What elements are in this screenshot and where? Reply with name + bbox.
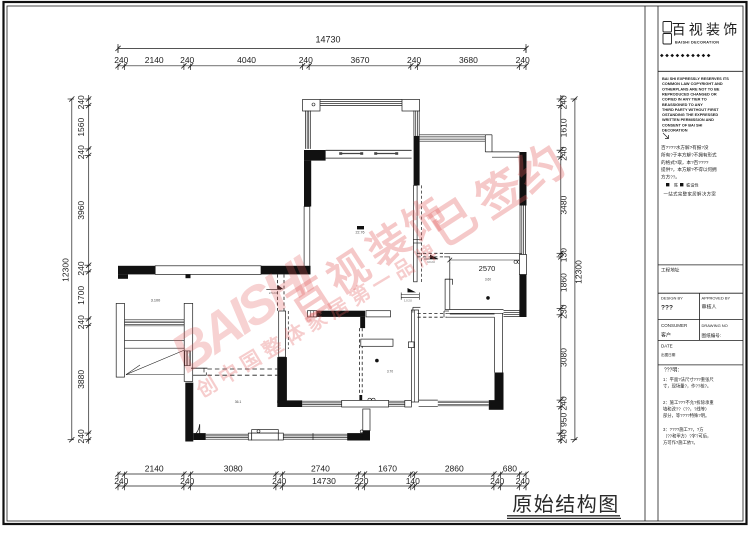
svg-text:BEASSIGNED TO ANY: BEASSIGNED TO ANY bbox=[662, 103, 703, 107]
svg-text:240: 240 bbox=[490, 476, 504, 486]
svg-text:1560: 1560 bbox=[76, 117, 86, 136]
svg-text:DATE: DATE bbox=[661, 344, 673, 349]
svg-text:原始结构图: 原始结构图 bbox=[512, 493, 620, 516]
svg-text:3：????施工??，?方: 3：????施工??，?方 bbox=[663, 426, 704, 433]
svg-text:3080: 3080 bbox=[559, 348, 569, 367]
svg-text:14730: 14730 bbox=[315, 35, 340, 45]
svg-text:240: 240 bbox=[76, 261, 86, 275]
svg-text:3960: 3960 bbox=[76, 201, 86, 220]
svg-text:240: 240 bbox=[407, 55, 421, 65]
svg-text:240: 240 bbox=[272, 476, 286, 486]
svg-text:WRITTEN PERMISSION AND: WRITTEN PERMISSION AND bbox=[662, 118, 714, 122]
svg-text:2140: 2140 bbox=[145, 55, 164, 65]
svg-text:BAISHI DECORATION: BAISHI DECORATION bbox=[675, 41, 719, 45]
svg-text:240: 240 bbox=[76, 145, 86, 159]
svg-text:220: 220 bbox=[354, 476, 368, 486]
svg-text:的格式?取，本?百????: 的格式?取，本?百???? bbox=[661, 159, 709, 166]
svg-text:3670: 3670 bbox=[351, 55, 370, 65]
svg-text:12300: 12300 bbox=[574, 260, 584, 284]
svg-text:REPRODUCED CHANGED OR: REPRODUCED CHANGED OR bbox=[662, 92, 717, 96]
svg-text:DRAWING NO: DRAWING NO bbox=[702, 323, 728, 328]
svg-text:240: 240 bbox=[180, 55, 194, 65]
svg-text:4040: 4040 bbox=[237, 55, 256, 65]
svg-text:OTHERPLANS ARE NOT TO BE: OTHERPLANS ARE NOT TO BE bbox=[662, 87, 720, 91]
svg-text:240: 240 bbox=[76, 429, 86, 443]
svg-text:3.60: 3.60 bbox=[485, 278, 491, 282]
svg-text:240: 240 bbox=[559, 429, 569, 443]
svg-text:部分，等????特殊?明。: 部分，等????特殊?明。 bbox=[663, 412, 709, 419]
svg-text:240: 240 bbox=[516, 476, 530, 486]
svg-text:出图日期: 出图日期 bbox=[661, 352, 676, 357]
svg-text:2140: 2140 bbox=[145, 464, 164, 474]
svg-text:240: 240 bbox=[516, 55, 530, 65]
svg-text:240: 240 bbox=[180, 476, 194, 486]
svg-text:1860: 1860 bbox=[559, 273, 569, 292]
svg-text:THIRD PARTY WITHOUT FIRST: THIRD PARTY WITHOUT FIRST bbox=[662, 108, 719, 112]
svg-text:240: 240 bbox=[114, 55, 128, 65]
svg-text:3080: 3080 bbox=[224, 464, 243, 474]
svg-text:12300: 12300 bbox=[61, 258, 71, 282]
svg-text:240: 240 bbox=[559, 95, 569, 109]
svg-text:240: 240 bbox=[76, 95, 86, 109]
svg-text:???: ??? bbox=[661, 305, 673, 312]
svg-text:COMMON LAW COPYRIGHT AND: COMMON LAW COPYRIGHT AND bbox=[662, 82, 723, 86]
svg-text:2：施工???不允?拆除承重: 2：施工???不允?拆除承重 bbox=[663, 399, 714, 406]
svg-text:BAI SHI EXPRESSLY RESERVES ITS: BAI SHI EXPRESSLY RESERVES ITS bbox=[662, 77, 729, 81]
svg-text:140: 140 bbox=[406, 476, 420, 486]
svg-text:审核人: 审核人 bbox=[702, 304, 717, 311]
svg-text:3680: 3680 bbox=[459, 55, 478, 65]
svg-text:方方??。: 方方??。 bbox=[661, 174, 680, 181]
svg-text:墙和改??（??，?线等）: 墙和改??（??，?线等） bbox=[663, 406, 709, 413]
svg-text:提供?，本方解?不得以何拥: 提供?，本方解?不得以何拥 bbox=[661, 166, 717, 173]
svg-text:1670: 1670 bbox=[378, 464, 397, 474]
svg-text:方可作?施工依?。: 方可作?施工依?。 bbox=[663, 439, 698, 446]
svg-text:APPROVED BY: APPROVED BY bbox=[702, 296, 731, 301]
svg-text:3.70: 3.70 bbox=[387, 370, 393, 374]
svg-text:680: 680 bbox=[503, 464, 517, 474]
svg-text:1.0 2.0: 1.0 2.0 bbox=[404, 300, 412, 303]
svg-text:2860: 2860 bbox=[445, 464, 464, 474]
svg-text:950: 950 bbox=[559, 413, 569, 427]
svg-text:1700: 1700 bbox=[76, 286, 86, 305]
svg-text:2740: 2740 bbox=[311, 464, 330, 474]
svg-text:240: 240 bbox=[299, 55, 313, 65]
svg-text:百????水方解?有报?没: 百????水方解?有报?没 bbox=[661, 144, 709, 151]
svg-text:240: 240 bbox=[114, 476, 128, 486]
svg-text:所有?于本方解?不拥有形式: 所有?于本方解?不拥有形式 bbox=[661, 151, 717, 158]
svg-text:（??和甲方）?字?可后，: （??和甲方）?字?可后， bbox=[663, 433, 711, 440]
svg-text:3480: 3480 bbox=[559, 195, 569, 214]
svg-text:130: 130 bbox=[559, 248, 569, 262]
svg-text:CONSENT OF BAI SHI: CONSENT OF BAI SHI bbox=[662, 123, 702, 127]
svg-text:工程地址: 工程地址 bbox=[661, 267, 680, 274]
svg-text:百视装饰: 百视装饰 bbox=[672, 22, 741, 38]
svg-text:一站式完整家居解决方案: 一站式完整家居解决方案 bbox=[664, 191, 717, 198]
svg-text:DECORATION: DECORATION bbox=[662, 129, 688, 133]
svg-text:14730: 14730 bbox=[312, 476, 336, 486]
svg-text:客户: 客户 bbox=[661, 332, 671, 339]
svg-text:2570: 2570 bbox=[479, 264, 496, 273]
svg-text:240: 240 bbox=[76, 315, 86, 329]
svg-text:???明：: ???明： bbox=[664, 368, 682, 374]
svg-text:3.100: 3.100 bbox=[151, 299, 161, 303]
svg-text:3880: 3880 bbox=[76, 370, 86, 389]
svg-text:1：平面?法尺寸???重张尺: 1：平面?法尺寸???重张尺 bbox=[663, 376, 714, 383]
svg-text:CONSUMER: CONSUMER bbox=[661, 323, 688, 328]
svg-text:240: 240 bbox=[559, 396, 569, 410]
svg-text:1610: 1610 bbox=[559, 118, 569, 137]
svg-text:寸，现场量?，作??核?。: 寸，现场量?，作??核?。 bbox=[663, 383, 711, 390]
svg-text:临设性: 临设性 bbox=[686, 182, 699, 189]
svg-text:36.1: 36.1 bbox=[235, 400, 242, 404]
svg-text:OSTANDING THE EXPRESSED: OSTANDING THE EXPRESSED bbox=[662, 113, 718, 117]
svg-text:图纸编号:: 图纸编号: bbox=[702, 332, 722, 339]
svg-text:COPIED IN ANY TIER TO: COPIED IN ANY TIER TO bbox=[662, 98, 707, 102]
svg-text:DESIGN BY: DESIGN BY bbox=[661, 296, 683, 301]
svg-text:230: 230 bbox=[559, 304, 569, 318]
